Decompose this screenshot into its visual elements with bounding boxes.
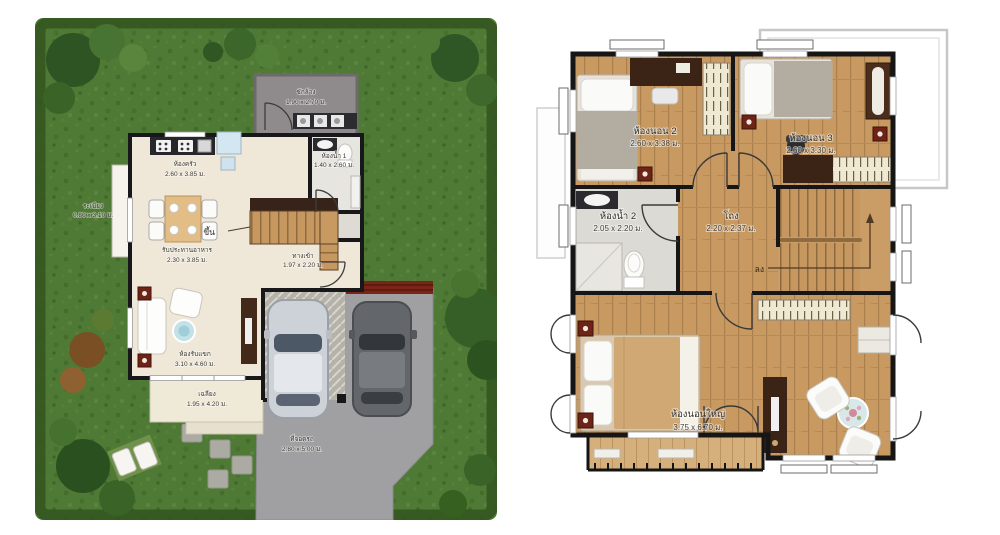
fridge [217,132,241,154]
bedroom2-dim: 2.60 x 3.38 ม. [630,139,679,148]
carpark-label: ที่จอดรถ [290,434,314,443]
living-dim: 3.10 x 4.60 ม. [175,361,215,368]
ground-floor-svg: ซักล้าง 1.90 x 2.70 ม. ห้องครัว 2.60 x 3… [35,18,497,520]
porch-label: เฉลียง [198,390,216,398]
living-label: ห้องรับแขก [179,350,211,358]
kitchen-label: ห้องครัว [174,160,197,168]
stairs-up-label: ขึ้น [203,226,215,237]
staircase-down [768,187,893,293]
tv-console [241,298,257,364]
closet-bedroom2 [703,63,730,135]
hall-dim: 2.20 x 2.37 ม. [706,224,755,233]
closet-master [758,300,850,320]
dining-label: รับประทานอาหาร [162,246,213,254]
dresser-master [858,327,892,353]
bedroom2-label: ห้องนอน 2 [633,126,676,137]
carport-post [337,394,346,403]
bedroom3-dim: 2.60 x 3.30 ม. [786,146,835,155]
laundry-dim: 1.90 x 2.70 ม. [286,99,326,106]
bathroom1-label: ห้องน้ำ 1 [322,151,347,160]
master-label: ห้องนอนใหญ่ [671,408,725,420]
bed-bedroom2 [577,75,637,181]
balcony-planter [594,449,620,458]
bedroom3-label: ห้องนอน 3 [789,133,832,144]
kitchen-counter [150,137,215,155]
dining-dim: 2.30 x 3.85 ม. [167,257,207,264]
bathroom2-label: ห้องน้ำ 2 [600,209,636,222]
balcony-planter [658,449,694,458]
side-ledge-label: ระเบียง [83,202,103,210]
bed-bedroom3 [740,59,832,119]
porch-floor [150,378,263,422]
porch-dim: 1.95 x 4.20 ม. [187,401,227,408]
floorplan-screenshot: ซักล้าง 1.90 x 2.70 ม. ห้องครัว 2.60 x 3… [0,0,1000,535]
second-floor-svg: ห้องนอน 2 2.60 x 3.38 ม. ห้องนอน 3 2.60 … [528,15,950,520]
porch-step [186,422,263,434]
bathroom2-dim: 2.05 x 2.20 ม. [593,224,642,233]
stairs-down-label: ลง [755,264,764,274]
entrance-dim: 1.97 x 2.20 ม. [283,262,323,269]
closet-bedroom3 [832,157,892,182]
laundry-label: ซักล้าง [296,88,315,96]
side-ledge-dim: 0.80 x 3.10 ม. [73,212,113,219]
car-dark [349,302,417,416]
washing-machine-icons [297,115,344,127]
kitchen-island [221,157,235,170]
second-floor-plan: ห้องนอน 2 2.60 x 3.38 ม. ห้องนอน 3 2.60 … [528,15,950,520]
entrance-label: ทางเข้า [292,252,314,260]
hall-label: โถง [723,210,739,222]
ground-floor-plan: ซักล้าง 1.90 x 2.70 ม. ห้องครัว 2.60 x 3… [35,18,497,520]
carpark-dim: 2.80 x 5.00 ม. [282,446,322,453]
bathroom1-dim: 1.40 x 2.60 ม. [314,162,354,169]
car-silver [264,300,332,418]
master-dim: 3.75 x 6.70 ม. [673,423,722,432]
kitchen-dim: 2.60 x 3.85 ม. [165,171,205,178]
wardrobe-bedroom3 [866,63,890,119]
